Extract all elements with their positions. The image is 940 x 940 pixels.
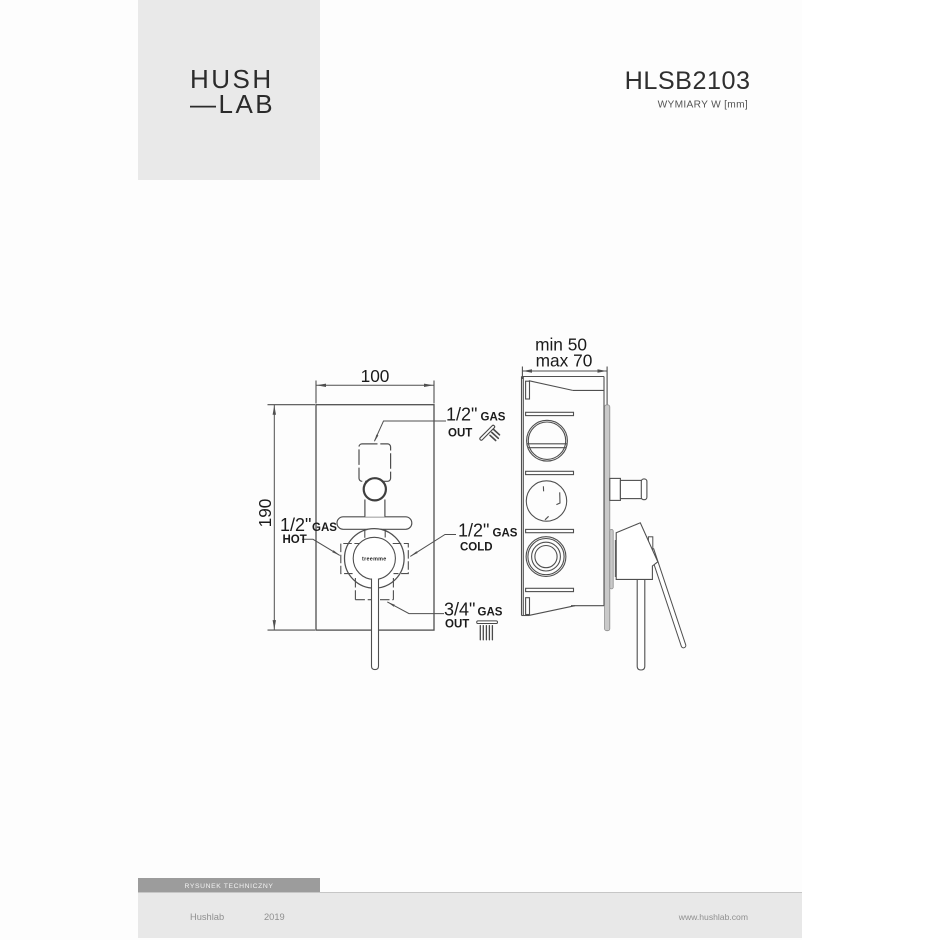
svg-text:2019: 2019 bbox=[264, 912, 285, 922]
svg-text:Hushlab: Hushlab bbox=[190, 912, 224, 922]
svg-text:OUT: OUT bbox=[448, 427, 472, 439]
svg-text:1/2": 1/2" bbox=[446, 405, 477, 425]
svg-text:WYMIARY W [mm]: WYMIARY W [mm] bbox=[658, 100, 748, 111]
svg-text:OUT: OUT bbox=[445, 618, 469, 630]
svg-text:GAS: GAS bbox=[312, 522, 337, 534]
svg-text:1/2": 1/2" bbox=[458, 521, 489, 541]
svg-text:3/4": 3/4" bbox=[444, 600, 475, 620]
svg-text:100: 100 bbox=[361, 366, 390, 386]
svg-text:HOT: HOT bbox=[283, 534, 307, 546]
svg-text:treemme: treemme bbox=[362, 557, 387, 563]
svg-text:GAS: GAS bbox=[478, 607, 503, 619]
svg-text:www.hushlab.com: www.hushlab.com bbox=[678, 912, 748, 922]
svg-text:—LAB: —LAB bbox=[190, 89, 275, 119]
svg-text:1/2": 1/2" bbox=[280, 515, 311, 535]
svg-text:RYSUNEK TECHNICZNY: RYSUNEK TECHNICZNY bbox=[184, 883, 273, 890]
svg-text:max 70: max 70 bbox=[536, 351, 593, 371]
svg-text:GAS: GAS bbox=[481, 412, 506, 424]
svg-text:COLD: COLD bbox=[460, 542, 493, 554]
svg-text:HLSB2103: HLSB2103 bbox=[625, 67, 751, 95]
svg-text:190: 190 bbox=[255, 499, 275, 528]
svg-text:GAS: GAS bbox=[493, 528, 518, 540]
